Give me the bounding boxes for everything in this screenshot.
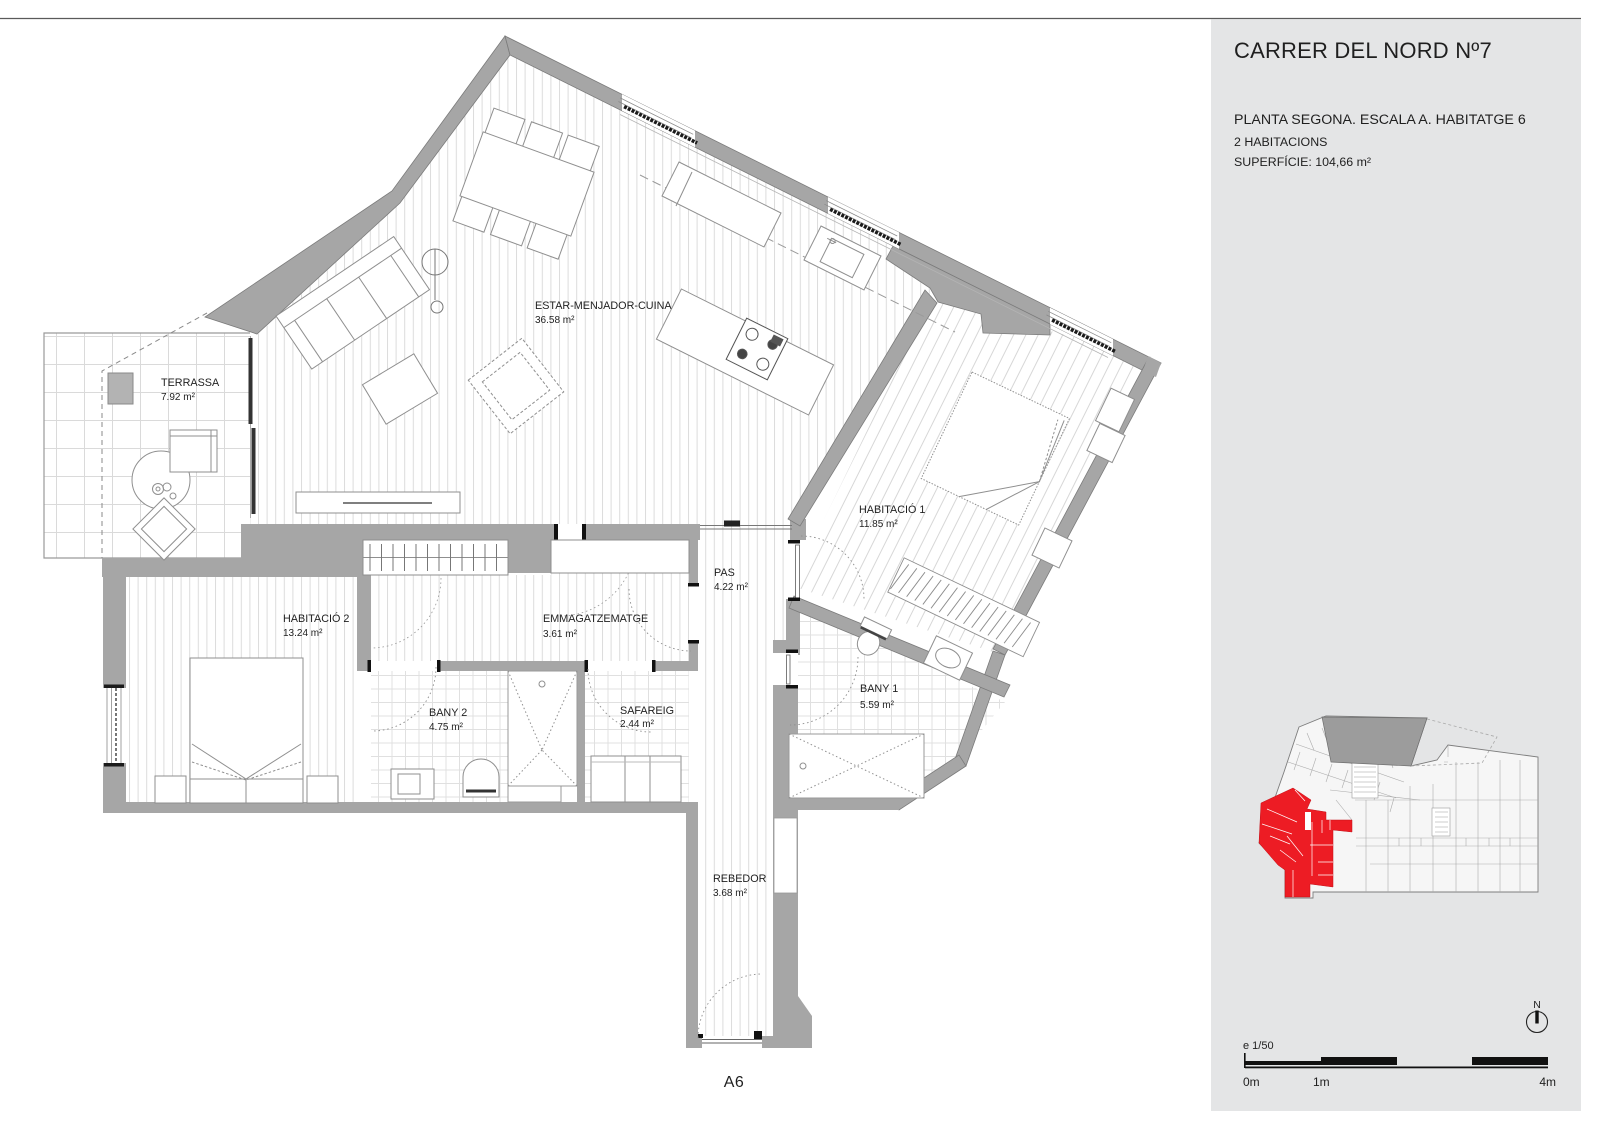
- svg-text:HABITACIÓ 2: HABITACIÓ 2: [283, 612, 349, 625]
- svg-text:PAS: PAS: [714, 567, 735, 579]
- svg-text:REBEDOR: REBEDOR: [713, 873, 767, 885]
- svg-text:BANY 2: BANY 2: [429, 707, 467, 719]
- svg-text:SAFAREIG: SAFAREIG: [620, 705, 674, 717]
- svg-text:CARRER DEL NORD Nº7: CARRER DEL NORD Nº7: [1234, 38, 1492, 63]
- svg-text:11.85 m²: 11.85 m²: [859, 519, 898, 530]
- svg-text:0m: 0m: [1243, 1075, 1260, 1089]
- svg-text:3.61 m²: 3.61 m²: [543, 629, 578, 640]
- svg-text:4.75 m²: 4.75 m²: [429, 722, 464, 733]
- svg-text:ESTAR-MENJADOR-CUINA: ESTAR-MENJADOR-CUINA: [535, 300, 672, 312]
- svg-text:4.22 m²: 4.22 m²: [714, 582, 749, 593]
- svg-text:3.68 m²: 3.68 m²: [713, 888, 748, 899]
- svg-text:TERRASSA: TERRASSA: [161, 377, 220, 389]
- svg-text:e 1/50: e 1/50: [1243, 1040, 1274, 1052]
- svg-text:EMMAGATZEMATGE: EMMAGATZEMATGE: [543, 613, 648, 625]
- svg-text:BANY 1: BANY 1: [860, 683, 898, 695]
- svg-text:4m: 4m: [1539, 1075, 1556, 1089]
- svg-text:7.92 m²: 7.92 m²: [161, 392, 196, 403]
- svg-text:5.59 m²: 5.59 m²: [860, 700, 895, 711]
- svg-text:36.58 m²: 36.58 m²: [535, 315, 575, 326]
- svg-text:PLANTA SEGONA. ESCALA A. HABIT: PLANTA SEGONA. ESCALA A. HABITATGE 6: [1234, 112, 1526, 128]
- svg-text:2.44 m²: 2.44 m²: [620, 719, 655, 730]
- svg-text:N: N: [1533, 999, 1541, 1011]
- svg-text:1m: 1m: [1313, 1075, 1330, 1089]
- svg-text:13.24 m²: 13.24 m²: [283, 628, 323, 639]
- svg-text:2 HABITACIONS: 2 HABITACIONS: [1234, 135, 1327, 149]
- svg-text:SUPERFÍCIE: 104,66 m²: SUPERFÍCIE: 104,66 m²: [1234, 154, 1371, 169]
- svg-text:A6: A6: [724, 1074, 745, 1091]
- svg-text:HABITACIÓ 1: HABITACIÓ 1: [859, 503, 925, 516]
